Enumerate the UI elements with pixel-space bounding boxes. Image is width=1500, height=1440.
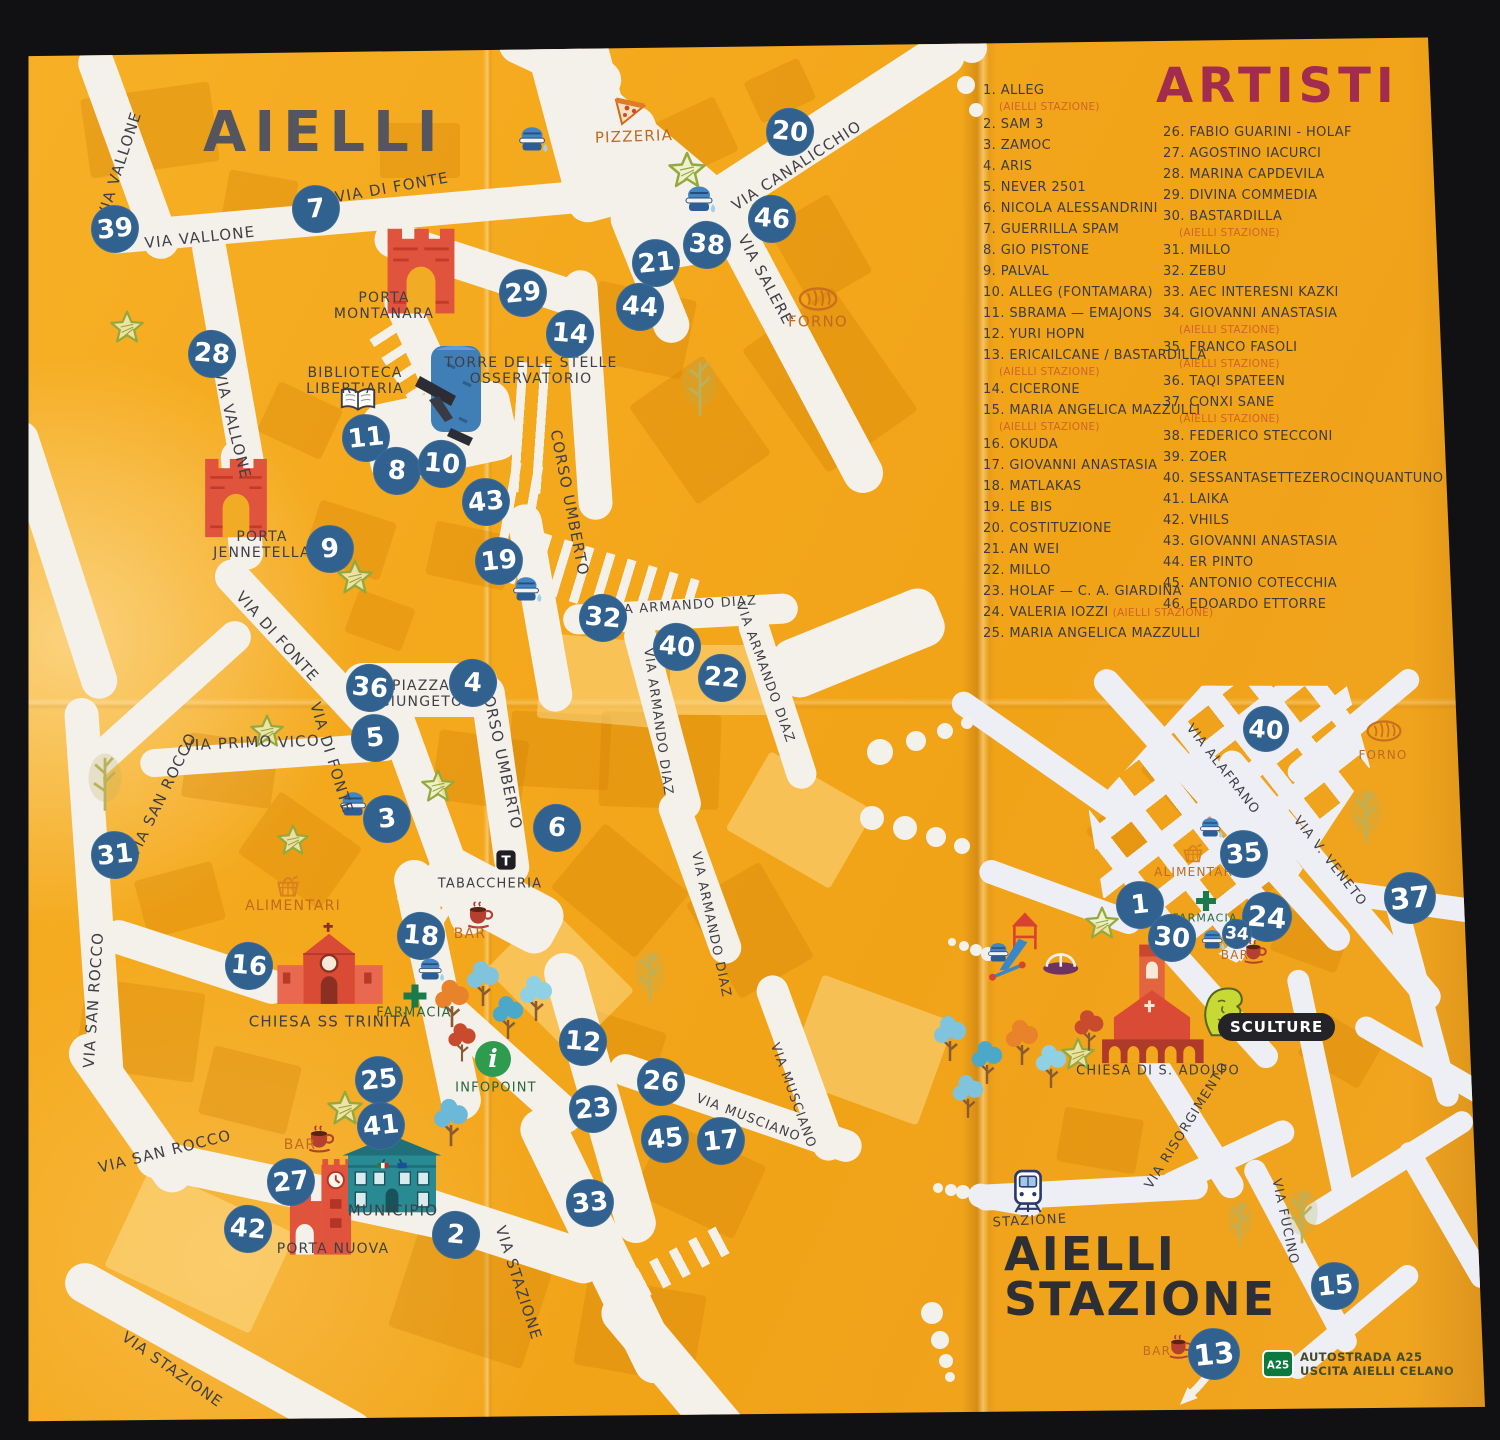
tabaccheria-sign-icon: T [494, 848, 518, 872]
coffee-bar-icon [464, 896, 498, 930]
route-dot [939, 1354, 953, 1368]
artist-item-note: (AIELLI STAZIONE) [1179, 324, 1413, 337]
route-dot [921, 1302, 943, 1324]
tree-icon [1345, 785, 1387, 846]
artist-item-24: 24. VALERIA IOZZI(AIELLI STAZIONE) [983, 602, 1178, 623]
poi-label-municipio: MUNICIPIO [348, 1202, 439, 1219]
route-dot [954, 838, 970, 854]
poi-label-biblioteca-libert-aria: BIBLIOTECA LIBERT'ARIA [306, 365, 404, 397]
artist-item-14: 14. CICERONE [983, 379, 1178, 400]
bread-forno-icon [1365, 718, 1403, 744]
artist-item-note: (AIELLI STAZIONE) [1179, 358, 1413, 371]
pizzeria-icon [610, 90, 650, 130]
route-dot [937, 723, 953, 739]
a25-highway-caption: A25 AUTOSTRADA A25 USCITA AIELLI CELANO [1262, 1350, 1454, 1379]
road [0, 417, 122, 704]
artist-item-20: 20. COSTITUZIONE [983, 518, 1178, 539]
a25-caption-line1: AUTOSTRADA A25 [1300, 1350, 1454, 1364]
artist-item-31: 31. MILLO [1163, 240, 1413, 261]
artist-item-13: 13. ERICAILCANE / BASTARDILLA(AIELLI STA… [983, 345, 1178, 379]
tree-icon [83, 749, 127, 813]
artist-item-39: 39. ZOER [1163, 447, 1413, 468]
photographed-folded-map: TiVIA VALLONEVIA VALLONEVIA DI FONTEVIA … [0, 0, 1500, 1440]
artist-item-7: 7. GUERRILLA SPAM [983, 219, 1178, 240]
poi-label-porta-montanara: PORTA MONTANARA [334, 290, 434, 322]
route-dot [957, 76, 975, 94]
artist-item-42: 42. VHILS [1163, 510, 1413, 531]
route-dot [926, 827, 946, 847]
artist-item-45: 45. ANTONIO COTECCHIA [1163, 573, 1413, 594]
artist-item-1: 1. ALLEG(AIELLI STAZIONE) [983, 80, 1178, 114]
artist-item-25: 25. MARIA ANGELICA MAZZULLI [983, 623, 1178, 644]
route-dot [961, 717, 973, 729]
artist-item-23: 23. HOLAF — C. A. GIARDINA [983, 581, 1178, 602]
tree-icon [430, 1096, 472, 1149]
tree-icon [1071, 1008, 1107, 1053]
a25-caption-text: AUTOSTRADA A25 USCITA AIELLI CELANO [1300, 1350, 1454, 1379]
poi-label-bar: BAR [284, 1137, 317, 1153]
artist-item-41: 41. LAIKA [1163, 489, 1413, 510]
artist-item-note: (AIELLI STAZIONE) [1179, 227, 1413, 240]
artist-item-8: 8. GIO PISTONE [983, 240, 1178, 261]
route-dot [893, 816, 917, 840]
basket-alimentari-icon [272, 872, 304, 901]
artist-legend-title: ARTISTI [1156, 58, 1399, 114]
station-title-line1: AIELLI [1004, 1232, 1276, 1277]
artist-item-21: 21. AN WEI [983, 539, 1178, 560]
artist-item-9: 9. PALVAL [983, 261, 1178, 282]
poi-label-bar: BAR [1143, 1345, 1171, 1359]
poi-label-farmacia: FARMACIA [376, 1007, 452, 1022]
star-icon [276, 823, 310, 857]
svg-text:i: i [488, 1044, 498, 1073]
basket-alimentari-icon [1179, 840, 1207, 865]
playground-icon [986, 905, 1091, 988]
tree-icon [516, 973, 556, 1023]
artist-item-16: 16. OKUDA [983, 434, 1178, 455]
tree-icon [678, 354, 722, 418]
poi-label-forno: FORNO [1358, 749, 1407, 763]
artist-item-15: 15. MARIA ANGELICA MAZZULLI(AIELLI STAZI… [983, 400, 1178, 434]
artist-item-4: 4. ARIS [983, 156, 1178, 177]
poi-label-porta-nuova: PORTA NUOVA [277, 1241, 390, 1257]
poi-label-infopoint: INFOPOINT [455, 1082, 537, 1097]
building-block [344, 589, 416, 652]
poi-label-torre-delle-stelle-osservatorio: TORRE DELLE STELLE OSSERVATORIO [444, 355, 617, 387]
poi-label-chiesa-di-s-adolfo: CHIESA DI S. ADOLFO [1076, 1065, 1240, 1080]
artist-item-29: 29. DIVINA COMMEDIA [1163, 185, 1413, 206]
chiesa-s-adolfo-icon [1097, 940, 1207, 1067]
poi-label-bar: BAR [454, 926, 487, 942]
chiesa-ss-trinita-icon [270, 915, 390, 1018]
artist-item-11: 11. SBRAMA — EMAJONS [983, 303, 1178, 324]
artist-item-37: 37. CONXI SANE(AIELLI STAZIONE) [1163, 392, 1413, 426]
artist-item-10: 10. ALLEG (FONTAMARA) [983, 282, 1178, 303]
route-dot [931, 1331, 949, 1349]
street-label-vico: VICO [278, 732, 321, 751]
building-block [134, 861, 227, 940]
road [947, 687, 1133, 827]
artist-item-40: 40. SESSANTASETTEZEROCINQUANTUNO [1163, 468, 1413, 489]
tree-icon [1032, 1042, 1070, 1090]
poi-label-porta-jennetella: PORTA JENNETELLA [213, 529, 311, 561]
svg-text:T: T [501, 854, 511, 870]
route-dot [945, 1372, 955, 1382]
artist-item-5: 5. NEVER 2501 [983, 177, 1178, 198]
route-dot [969, 103, 983, 117]
town-map-title: AIELLI [203, 100, 446, 165]
route-dot [959, 941, 969, 951]
artist-item-26: 26. FABIO GUARINI - HOLAF [1163, 122, 1413, 143]
infopoint-icon: i [473, 1039, 513, 1079]
star-icon [109, 309, 145, 345]
torre-stelle-icon [407, 334, 497, 446]
artist-item-note: (AIELLI STAZIONE) [999, 421, 1178, 434]
fountain-icon [514, 122, 552, 160]
building-block [198, 1045, 302, 1135]
route-dot [860, 806, 884, 830]
artist-item-note: (AIELLI STAZIONE) [999, 101, 1178, 114]
artist-item-46: 46. EDOARDO ETTORRE [1163, 594, 1413, 615]
farmacia-cross-icon [1193, 888, 1219, 914]
artist-item-12: 12. YURI HOPN [983, 324, 1178, 345]
artist-item-38: 38. FEDERICO STECCONI [1163, 426, 1413, 447]
artist-list-column-2: 26. FABIO GUARINI - HOLAF27. AGOSTINO IA… [1163, 122, 1413, 615]
artist-item-28: 28. MARINA CAPDEVILA [1163, 164, 1413, 185]
bread-forno-icon [797, 285, 839, 314]
sculture-legend-badge: SCULTURE [1218, 1013, 1335, 1041]
route-dot [948, 938, 956, 946]
artist-item-2: 2. SAM 3 [983, 114, 1178, 135]
tree-icon [949, 1072, 987, 1120]
artist-list-column-1: 1. ALLEG(AIELLI STAZIONE)2. SAM 33. ZAMO… [983, 80, 1178, 644]
artist-item-34: 34. GIOVANNI ANASTASIA(AIELLI STAZIONE) [1163, 303, 1413, 337]
artist-item-27: 27. AGOSTINO IACURCI [1163, 143, 1413, 164]
artist-item-6: 6. NICOLA ALESSANDRINI [983, 198, 1178, 219]
artwork-marker-6: 6 [531, 802, 583, 854]
artist-item-17: 17. GIOVANNI ANASTASIA [983, 455, 1178, 476]
poi-label-forno: FORNO [788, 313, 848, 330]
poi-label-alimentari: ALIMENTARI [245, 898, 341, 914]
star-icon [667, 150, 707, 190]
tree-icon [930, 1013, 970, 1063]
poi-label-bar: BAR [1221, 949, 1249, 963]
map-paper-sheet: TiVIA VALLONEVIA VALLONEVIA DI FONTEVIA … [0, 0, 1500, 1440]
artist-item-44: 44. ER PINTO [1163, 552, 1413, 573]
artist-item-18: 18. MATLAKAS [983, 476, 1178, 497]
route-dot [933, 1183, 943, 1193]
route-dot [906, 731, 926, 751]
svg-text:A25: A25 [1267, 1360, 1289, 1372]
train-station-icon [1007, 1167, 1049, 1215]
star-icon [420, 768, 456, 804]
artist-item-36: 36. TAQI SPATEEN [1163, 371, 1413, 392]
artist-item-32: 32. ZEBU [1163, 261, 1413, 282]
tree-icon [445, 1021, 479, 1064]
artist-item-35: 35. FRANCO FASOLI(AIELLI STAZIONE) [1163, 337, 1413, 371]
road [1285, 968, 1355, 1202]
a25-caption-line2: USCITA AIELLI CELANO [1300, 1364, 1454, 1378]
station-title-line2: STAZIONE [1004, 1277, 1276, 1322]
poi-label-pizzeria: PIZZERIA [595, 127, 674, 147]
artist-item-note: (AIELLI STAZIONE) [1179, 413, 1413, 426]
route-dot [867, 739, 893, 765]
poi-label-tabaccheria: TABACCHERIA [438, 878, 543, 893]
a25-badge-icon: A25 [1262, 1350, 1294, 1378]
artist-item-note: (AIELLI STAZIONE) [999, 366, 1178, 379]
route-dot [956, 1185, 970, 1199]
artist-item-19: 19. LE BIS [983, 497, 1178, 518]
station-map-title: AIELLI STAZIONE [1004, 1232, 1276, 1322]
artist-item-43: 43. GIOVANNI ANASTASIA [1163, 531, 1413, 552]
artist-item-33: 33. AEC INTERESNI KAZKI [1163, 282, 1413, 303]
route-dot [957, 33, 987, 63]
artist-item-3: 3. ZAMOC [983, 135, 1178, 156]
tree-icon [630, 946, 670, 1004]
artist-item-22: 22. MILLO [983, 560, 1178, 581]
artist-item-30: 30. BASTARDILLA(AIELLI STAZIONE) [1163, 206, 1413, 240]
building-block [1056, 1106, 1144, 1174]
